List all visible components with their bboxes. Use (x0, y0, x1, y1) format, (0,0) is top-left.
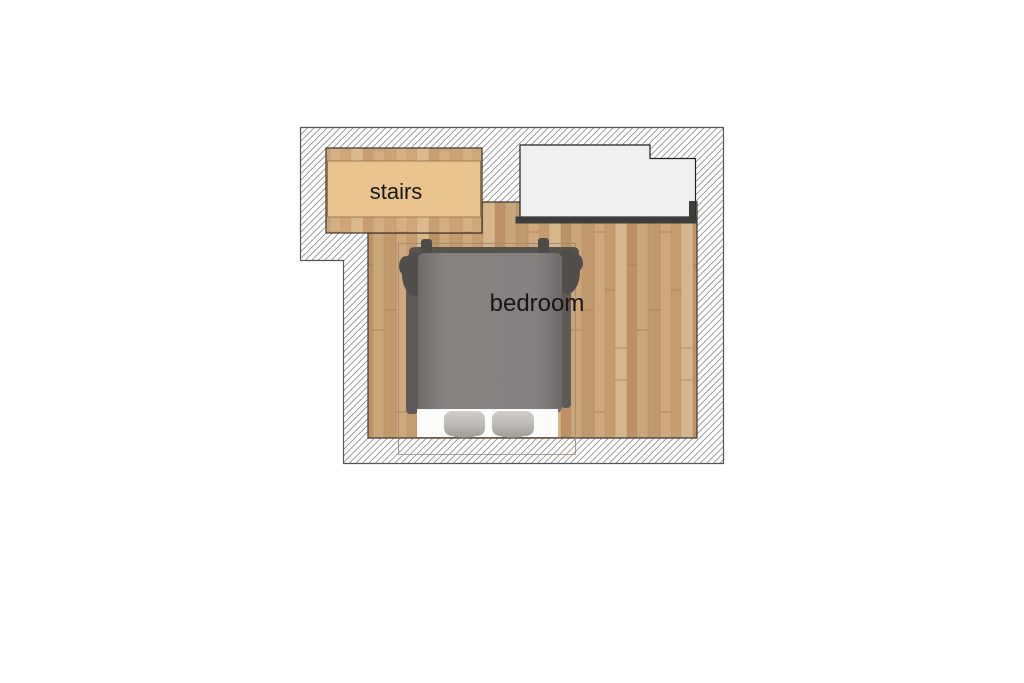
pillow-left (444, 411, 485, 436)
bedroom-label: bedroom (490, 290, 585, 317)
stairs-area: stairs (326, 148, 482, 233)
bed-post-left-knob (399, 256, 413, 276)
floorplan-canvas: stairs (0, 0, 1024, 683)
upper-area-right-wall (689, 201, 696, 217)
bed-sheet (417, 409, 558, 437)
bed (399, 238, 583, 438)
bed-duvet (418, 253, 562, 413)
pillow-right (492, 411, 534, 436)
stairs-label: stairs (370, 179, 423, 204)
bed-post-right-finial (538, 238, 549, 254)
bed-post-right-knob (569, 254, 583, 272)
upper-area-bottom-wall (516, 217, 698, 224)
floorplan-drawing: stairs (0, 0, 1024, 683)
bed-post-left-finial (421, 239, 432, 255)
